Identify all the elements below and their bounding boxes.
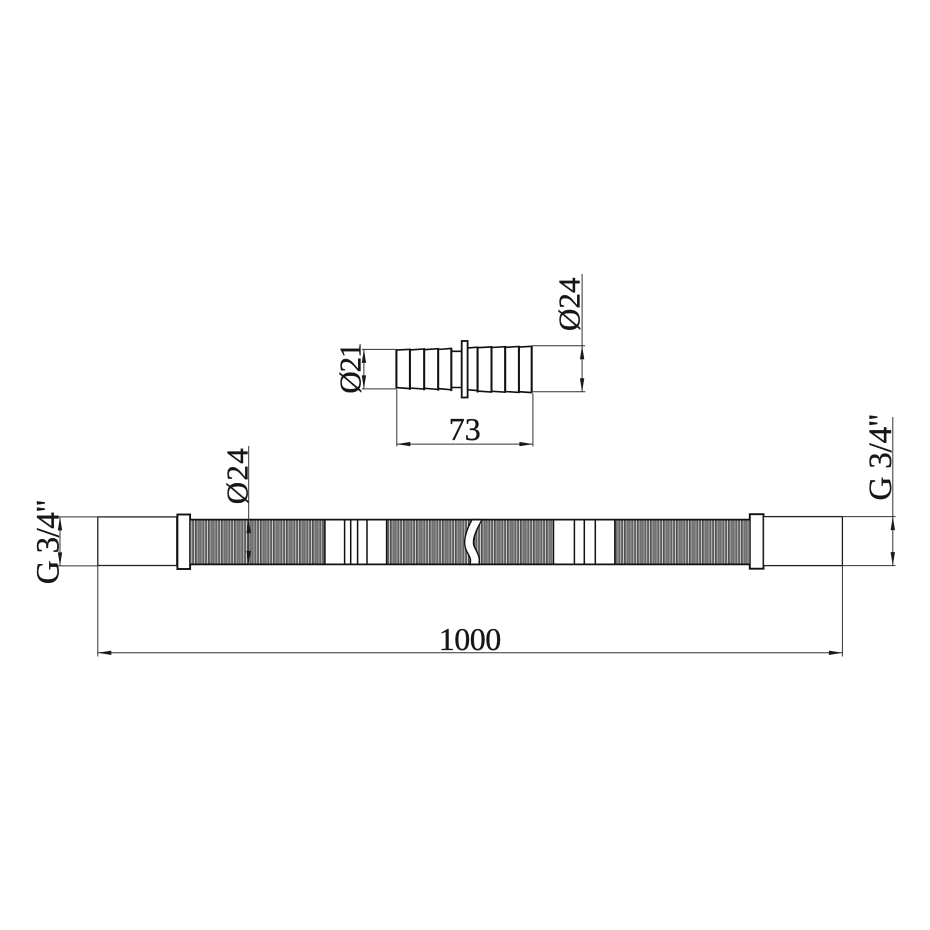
svg-text:1000: 1000: [439, 621, 502, 657]
svg-text:73: 73: [449, 411, 481, 447]
svg-text:Ø24: Ø24: [552, 277, 587, 331]
svg-text:Ø21: Ø21: [332, 343, 367, 394]
svg-text:G 3/4": G 3/4": [31, 499, 67, 584]
svg-text:G 3/4": G 3/4": [863, 414, 899, 501]
svg-text:Ø24: Ø24: [219, 448, 254, 505]
